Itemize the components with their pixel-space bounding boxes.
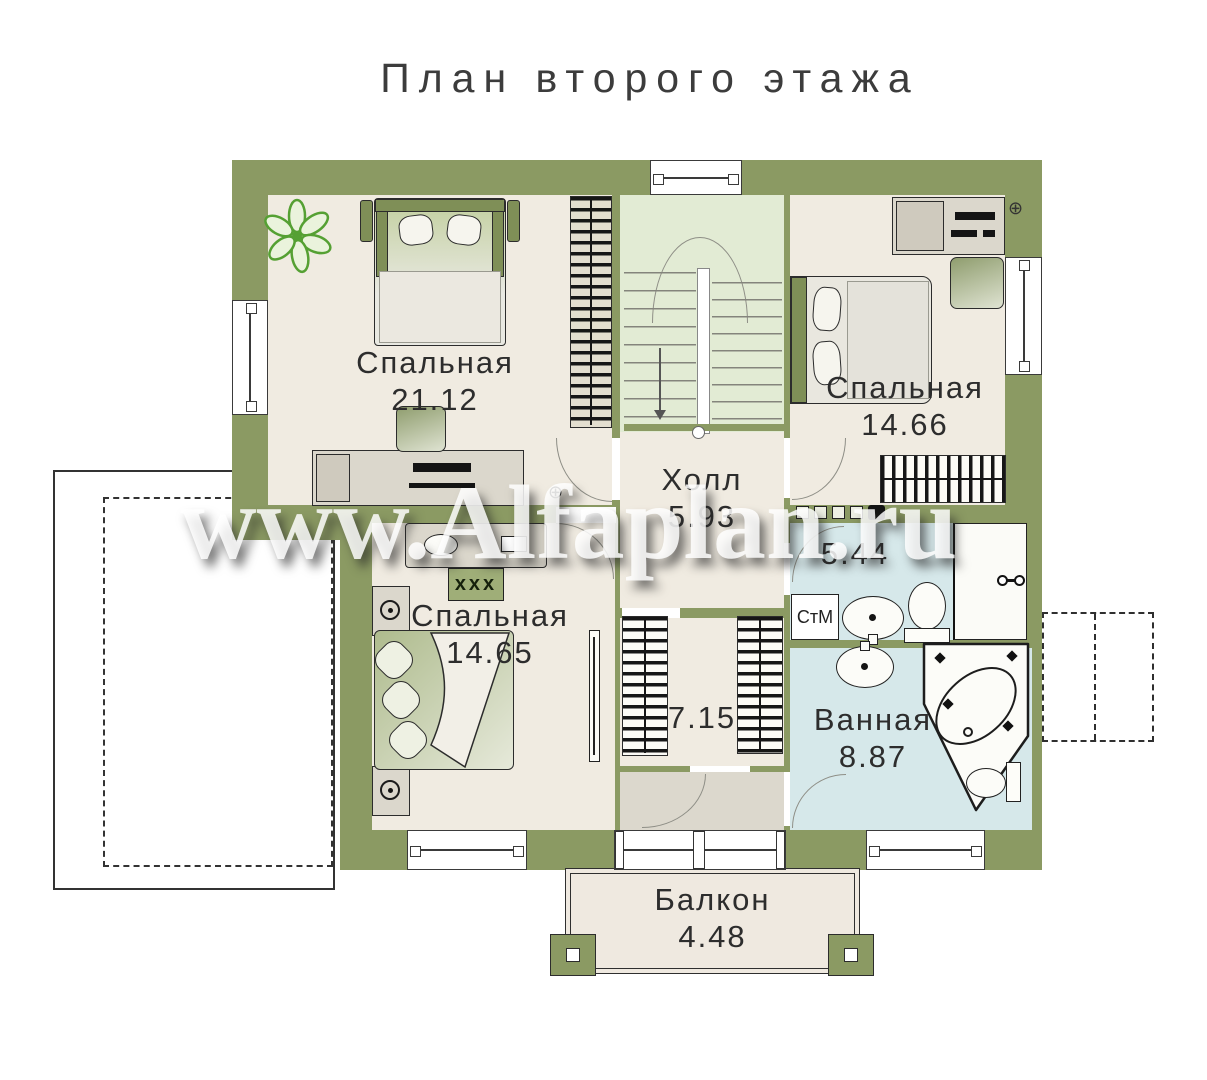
room-name: Балкон [575,882,850,919]
desk-cabinet [896,201,944,251]
door-post [693,831,705,869]
window-cap [246,303,257,314]
pillow-icon [811,286,842,332]
window-icon [232,300,268,415]
window-glass-line [872,849,979,851]
room-label-balcony: Балкон 4.48 [575,882,850,955]
room-label-bathroom: Ванная 8.87 [758,702,988,775]
sink-drain [861,663,868,670]
room-name: Спальная [765,370,1045,407]
door-opening [784,772,790,826]
window-glass-line [249,306,251,409]
sink-drain [869,614,876,621]
room-area: 8.87 [758,739,988,776]
window-cap [653,174,664,185]
window-cap [410,846,421,857]
window-cap [971,846,982,857]
sink-icon [836,646,894,688]
crosshair-icon: ⊕ [1008,198,1023,219]
faucet-icon [860,641,870,651]
room-name: Спальная [285,345,585,382]
room-label-bedroom-bottom-left: Спальная 14.65 [340,598,640,671]
shower-handle-bar [1006,579,1016,582]
chimney-divider [1094,614,1096,740]
computer-icon [955,212,995,220]
stair-arrow-icon [654,410,666,420]
window-icon [1005,257,1042,375]
bed-headboard [375,199,505,212]
sink-icon [842,596,904,640]
window-cap [1019,260,1030,271]
room-area: 14.65 [340,635,640,672]
window-glass-line [1023,263,1025,369]
window-cap [513,846,524,857]
balcony-door-icon [614,830,786,870]
bed-arm [492,211,504,277]
chimney-outline [1042,612,1154,742]
washing-machine-icon: СтМ [791,594,839,640]
toilet-tank [1006,762,1021,802]
bed-mattress [379,271,501,343]
page-title: План второго этажа [300,55,1000,102]
window-cap [869,846,880,857]
pillow-icon [397,213,434,247]
room-name: Ванная [758,702,988,739]
bed-arm [376,211,388,277]
nightstand-icon [360,200,373,242]
room-area: 14.66 [765,407,1045,444]
nightstand-icon [507,200,520,242]
speaker-dot [388,788,393,793]
window-icon [407,830,527,870]
window-glass-line [413,849,521,851]
room-label-bedroom-top-right: Спальная 14.66 [765,370,1045,443]
room-name: Спальная [340,598,640,635]
chair-icon [950,257,1004,309]
toilet-icon [908,582,946,630]
desk-icon [892,197,1005,255]
pillow-icon [445,213,482,247]
stair-direction-line [659,348,661,412]
window-cap [246,401,257,412]
plant-icon [260,196,334,276]
room-area: 4.48 [575,919,850,956]
floor-plan-canvas: План второго этажа [0,0,1207,1080]
room-label-bedroom-top-left: Спальная 21.12 [285,345,585,418]
window-icon [866,830,985,870]
window-icon [650,160,742,195]
stair-newel-icon [692,426,705,439]
stair-stringer [697,268,710,434]
door-post [615,831,624,869]
double-bed-icon [374,198,506,346]
keyboard-icon [951,230,977,237]
door-opening [690,766,750,772]
speaker-icon [372,766,410,816]
mouse-icon [983,230,995,237]
window-cap [728,174,739,185]
door-post [776,831,785,869]
window-glass-line [656,177,736,179]
room-area: 21.12 [285,382,585,419]
watermark: www.Alfaplan.ru [180,462,957,584]
